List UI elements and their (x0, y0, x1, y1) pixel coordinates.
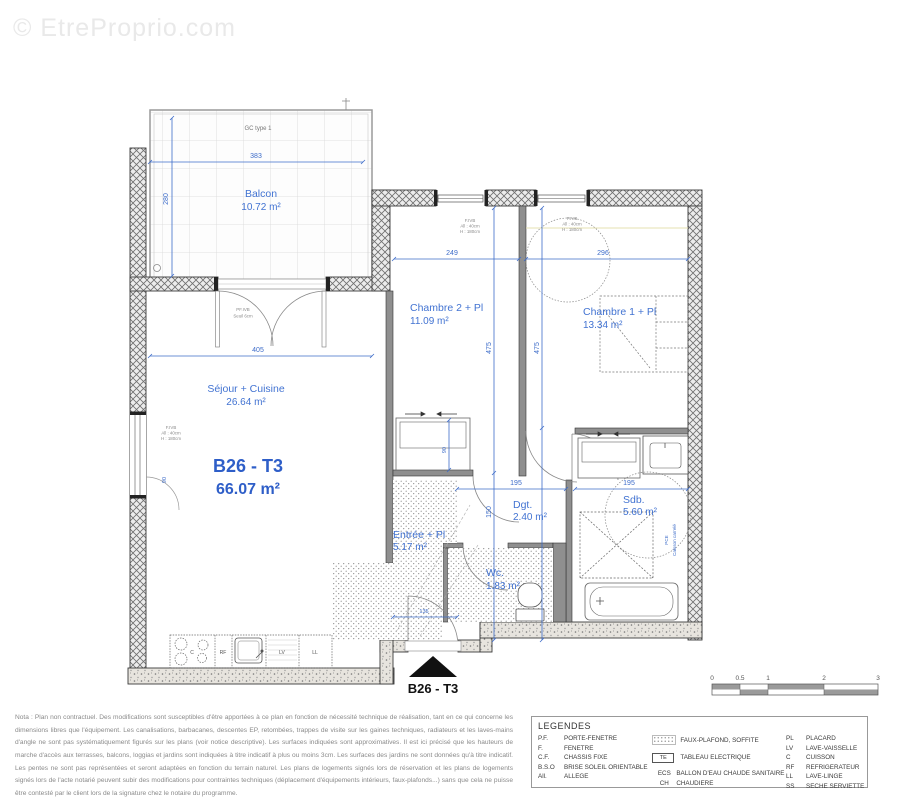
svg-text:H : 180cm: H : 180cm (562, 227, 582, 232)
svg-text:All : 40cm: All : 40cm (562, 222, 582, 227)
disclaimer-text: Nota : Plan non contractuel. Des modific… (15, 712, 513, 801)
balcony-french-door (214, 277, 330, 347)
dim-ch2-h: 475 (486, 342, 493, 354)
room-chambre1: Chambre 1 + Pl (583, 306, 656, 318)
kitchen-sink (235, 638, 264, 663)
dishwasher-label: LV (279, 650, 285, 656)
unit-label: B26 - T3 (213, 456, 283, 476)
window-label-chambre1: F.IVB All : 40cm H : 180cm (562, 216, 582, 232)
svg-text:All : 40cm: All : 40cm (161, 431, 181, 436)
window-chambre2 (434, 190, 488, 206)
chambre1-door-arc (526, 431, 577, 482)
room-chambre2-area: 11.09 m² (410, 316, 449, 327)
entrance-label: B26 - T3 (408, 681, 459, 696)
svg-text:H : 180cm: H : 180cm (460, 229, 480, 234)
dim-placard: 90 (442, 447, 448, 453)
scale-05: 0.5 (735, 675, 744, 682)
svg-text:PCE: PCE (664, 535, 669, 544)
legend-row: PLPLACARD (786, 735, 861, 742)
entrance-mark: B26 - T3 (408, 656, 459, 696)
closet-sdb (578, 432, 640, 478)
unit-area: 66.07 m² (216, 481, 280, 498)
legend-row: LLLAVE-LINGE (786, 773, 861, 780)
legend-box: LEGENDES P.F.PORTE-FENETRE F.FENETRE C.F… (531, 716, 868, 788)
entry-threshold (405, 641, 461, 651)
washing-machine (580, 512, 653, 578)
legend-row: B.S.OBRISE SOLEIL ORIENTABLE (538, 764, 652, 771)
svg-text:PF.IVB: PF.IVB (236, 307, 249, 312)
window-label-chambre2: F.IVB All : 40cm H : 180cm (460, 218, 480, 234)
legend-row: All.ALLEGE (538, 773, 652, 780)
room-entree-area: 5.17 m² (393, 542, 428, 553)
room-sejour-area: 26.64 m² (226, 397, 266, 408)
room-wc-area: 1.83 m² (486, 581, 521, 592)
legend-title: LEGENDES (538, 721, 861, 731)
dim-sdb-w: 195 (623, 480, 635, 487)
legend-row: ECSBALLON D'EAU CHAUDE SANITAIRE (652, 770, 786, 777)
dim-ch2-w: 249 (446, 250, 458, 257)
room-entree: Entrée + Pl (393, 529, 445, 541)
legend-row: F.FENETRE (538, 745, 652, 752)
caisson-label: PCE Caisson carrelé (664, 524, 677, 556)
room-dgt-area: 2.40 m² (513, 512, 548, 523)
dim-dgt-h: 150 (486, 506, 493, 518)
closet-chambre2 (396, 412, 470, 470)
legend-row: CCUISSON (786, 754, 861, 761)
svg-text:H : 180cm: H : 180cm (161, 436, 181, 441)
te-swatch-icon: TE (652, 753, 674, 763)
toilet (516, 583, 544, 621)
entrance-triangle-icon (409, 656, 457, 677)
room-sdb-area: 5.60 m² (623, 507, 658, 518)
legend-row: P.F.PORTE-FENETRE (538, 735, 652, 742)
dim-ch1-h: 475 (534, 342, 541, 354)
svg-text:F.IVB: F.IVB (567, 216, 578, 221)
gc-type-label: GC type 1 (244, 126, 272, 132)
legend-row: LVLAVE-VAISSELLE (786, 745, 861, 752)
scale-2: 2 (822, 675, 826, 682)
washer-label: LL (312, 650, 318, 656)
antenna-mark-icon (342, 98, 350, 110)
legend-row: TETABLEAU ELECTRIQUE (652, 753, 786, 763)
legend-col-equipment: PLPLACARD LVLAVE-VAISSELLE CCUISSON RFRE… (786, 735, 861, 793)
dim-window: 90 (162, 477, 168, 483)
legend-row: CHCHAUDIERE (652, 780, 786, 787)
scale-3: 3 (876, 675, 880, 682)
svg-text:F.IVB: F.IVB (166, 425, 177, 430)
legend-row: C.F.CHASSIS FIXE (538, 754, 652, 761)
room-balcon: Balcon (245, 188, 277, 200)
legend-row: SSSECHE SERVIETTE (786, 783, 861, 790)
svg-text:F.IVB: F.IVB (465, 218, 476, 223)
svg-text:Seuil 6cm: Seuil 6cm (233, 314, 253, 319)
pf-door-label: PF.IVB Seuil 6cm (233, 307, 253, 319)
bathtub (585, 583, 678, 620)
scale-bar: 0 0.5 1 2 3 (710, 675, 880, 695)
room-sdb: Sdb. (623, 494, 645, 506)
legend-col-technical: FAUX-PLAFOND, SOFFITE TETABLEAU ELECTRIQ… (652, 735, 786, 793)
dim-dgt-w: 195 (510, 480, 522, 487)
scale-1: 1 (766, 675, 770, 682)
room-chambre2: Chambre 2 + Pl (410, 302, 483, 314)
window-label-sejour: F.IVB All : 40cm H : 180cm (161, 425, 181, 441)
legend-col-openings: P.F.PORTE-FENETRE F.FENETRE C.F.CHASSIS … (538, 735, 652, 793)
floorplan-svg: TE C RF LV LL (0, 0, 897, 800)
scale-0: 0 (710, 675, 714, 682)
svg-text:All : 40cm: All : 40cm (460, 224, 480, 229)
dim-balcon-h: 280 (163, 193, 170, 205)
room-sejour: Séjour + Cuisine (207, 383, 284, 395)
legend-row: FAUX-PLAFOND, SOFFITE (652, 735, 786, 745)
faux-plafond-swatch-icon (652, 735, 676, 745)
room-dgt: Dgt. (513, 499, 532, 511)
fridge-label: RF (220, 650, 227, 656)
dim-balcon-w: 383 (250, 153, 262, 160)
vanity-basin (643, 436, 688, 474)
window-chambre1 (534, 190, 590, 206)
dim-entree: 135 (419, 609, 428, 615)
dim-ch1-w: 296 (597, 250, 609, 257)
room-wc: Wc. (486, 567, 504, 579)
room-chambre1-area: 13.34 m² (583, 320, 623, 331)
cooktop-label: C (190, 650, 194, 656)
dim-sejour-w: 405 (252, 347, 264, 354)
room-balcon-area: 10.72 m² (241, 202, 281, 213)
svg-text:Caisson carrelé: Caisson carrelé (672, 524, 677, 556)
legend-row: RFREFRIGERATEUR (786, 764, 861, 771)
